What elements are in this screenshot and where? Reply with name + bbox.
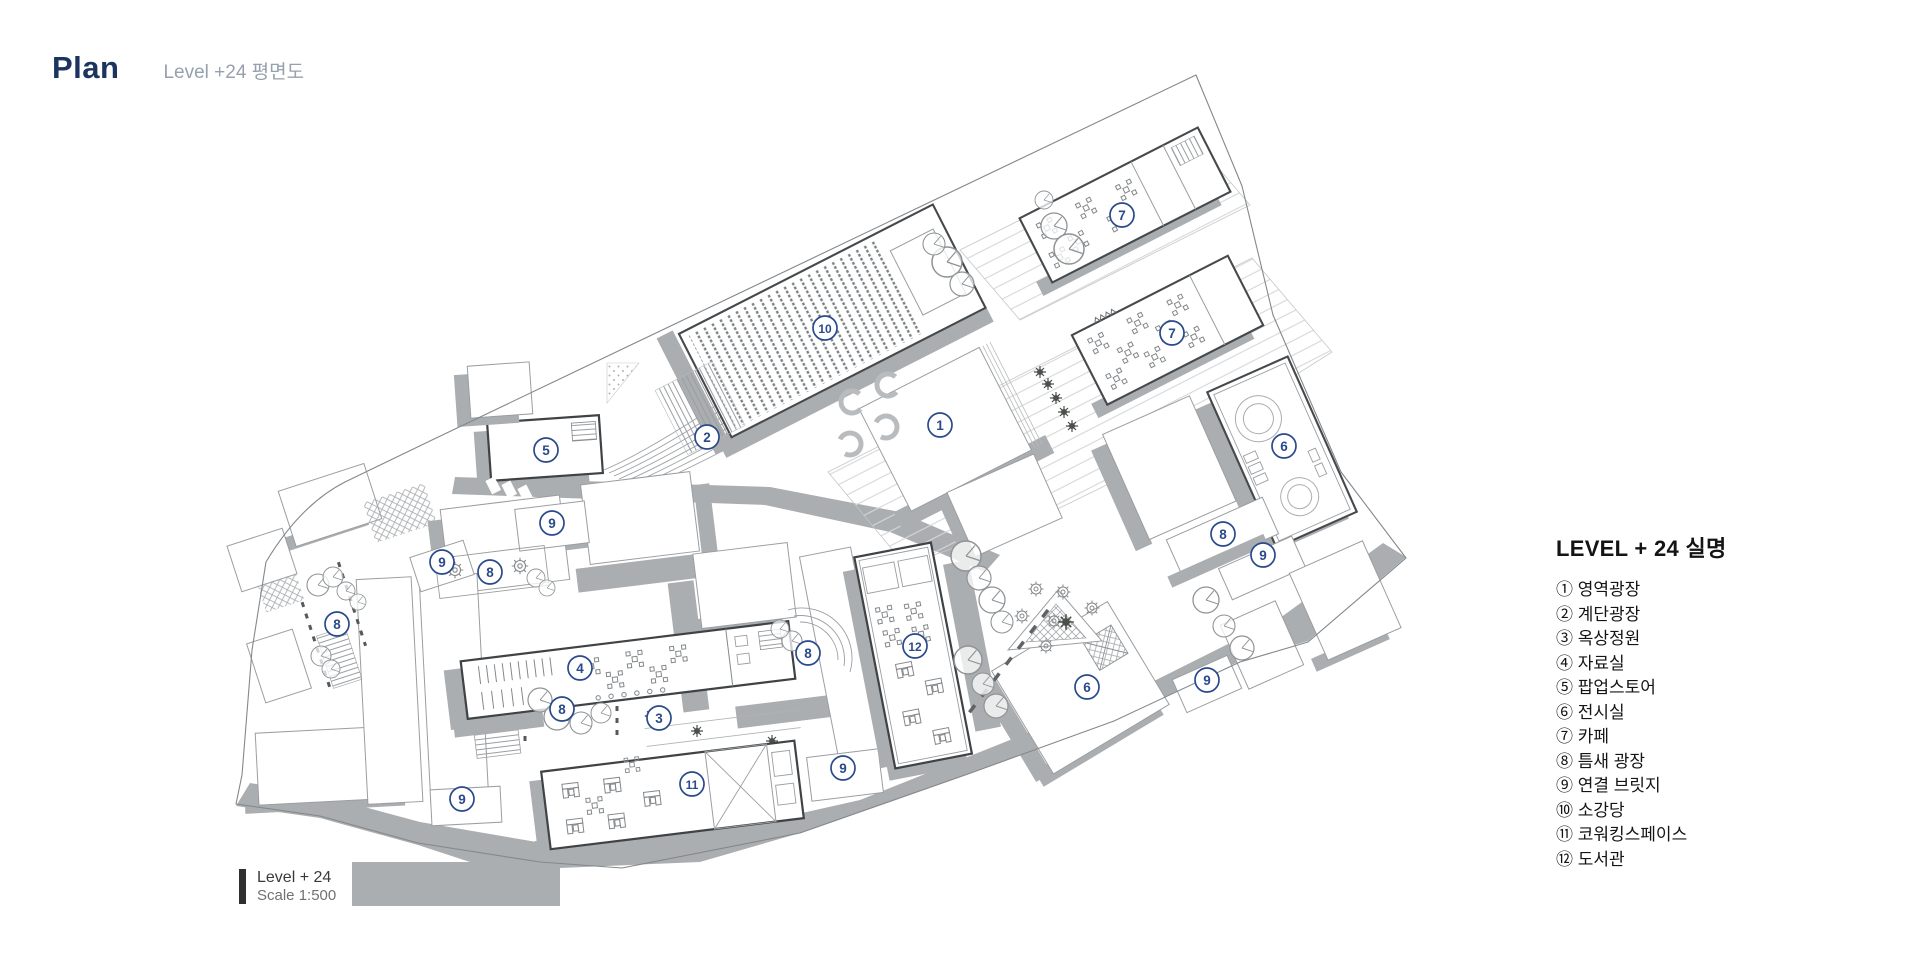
scale-ratio-label: Scale 1:500 — [257, 887, 336, 904]
svg-text:8: 8 — [486, 565, 494, 580]
svg-text:10: 10 — [818, 322, 832, 336]
legend: LEVEL + 24 실명 ① 영역광장② 계단광장③ 옥상정원④ 자료실⑤ 팝… — [1556, 531, 1727, 872]
svg-text:8: 8 — [333, 617, 341, 632]
svg-text:7: 7 — [1168, 326, 1176, 341]
svg-text:9: 9 — [839, 761, 847, 776]
legend-item: ④ 자료실 — [1556, 652, 1727, 677]
legend-item: ① 영역광장 — [1556, 578, 1727, 603]
plan-marker: 10 — [813, 316, 837, 340]
plan-marker: 9 — [1195, 668, 1219, 692]
legend-items: ① 영역광장② 계단광장③ 옥상정원④ 자료실⑤ 팝업스토어⑥ 전시실⑦ 카페⑧… — [1556, 578, 1727, 872]
svg-text:3: 3 — [655, 711, 663, 726]
legend-item: ⑪ 코워킹스페이스 — [1556, 823, 1727, 848]
plan-marker: 4 — [568, 656, 592, 680]
legend-item: ③ 옥상정원 — [1556, 627, 1727, 652]
scale-block: Level + 24 Scale 1:500 — [239, 869, 336, 904]
page-header: Plan Level +24 평면도 — [52, 50, 304, 86]
svg-text:1: 1 — [936, 418, 944, 433]
svg-text:12: 12 — [908, 640, 922, 654]
plan-marker: 12 — [903, 634, 927, 658]
scale-level-label: Level + 24 — [257, 869, 336, 887]
plan-marker: 3 — [647, 706, 671, 730]
page-title: Plan — [52, 50, 119, 86]
plan-marker: 7 — [1110, 203, 1134, 227]
plan-marker: 5 — [534, 438, 558, 462]
legend-item: ② 계단광장 — [1556, 603, 1727, 628]
svg-text:9: 9 — [1259, 548, 1267, 563]
coworking-building — [526, 738, 805, 863]
plan-marker: 9 — [540, 511, 564, 535]
plan-marker: 2 — [695, 425, 719, 449]
plan-marker: 1 — [928, 413, 952, 437]
plan-marker: 8 — [1211, 522, 1235, 546]
svg-text:8: 8 — [558, 702, 566, 717]
legend-item: ⑫ 도서관 — [1556, 848, 1727, 873]
plan-marker: 8 — [478, 560, 502, 584]
legend-item: ⑤ 팝업스토어 — [1556, 676, 1727, 701]
legend-title: LEVEL + 24 실명 — [1556, 531, 1727, 563]
scale-bar — [239, 869, 246, 904]
legend-item: ⑩ 소강당 — [1556, 799, 1727, 824]
legend-item: ⑥ 전시실 — [1556, 701, 1727, 726]
svg-text:6: 6 — [1280, 439, 1288, 454]
plan-marker: 6 — [1272, 434, 1296, 458]
svg-text:6: 6 — [1083, 680, 1091, 695]
plan-marker: 9 — [831, 756, 855, 780]
svg-text:4: 4 — [576, 661, 584, 676]
plan-marker: 9 — [430, 550, 454, 574]
plan-marker: 11 — [680, 772, 704, 796]
svg-text:9: 9 — [438, 555, 446, 570]
svg-text:9: 9 — [458, 792, 466, 807]
svg-text:11: 11 — [686, 778, 699, 792]
plan-marker: 6 — [1075, 675, 1099, 699]
plan-marker: 8 — [796, 641, 820, 665]
plan-marker: 8 — [325, 612, 349, 636]
plan-marker: 9 — [450, 787, 474, 811]
plan-marker: 8 — [550, 697, 574, 721]
svg-text:2: 2 — [703, 430, 711, 445]
svg-text:7: 7 — [1118, 208, 1126, 223]
legend-item: ⑦ 카페 — [1556, 725, 1727, 750]
plan-marker: 9 — [1251, 543, 1275, 567]
legend-item: ⑧ 틈새 광장 — [1556, 750, 1727, 775]
svg-text:8: 8 — [804, 646, 812, 661]
page-subtitle: Level +24 평면도 — [163, 57, 304, 84]
plan-marker: 7 — [1160, 321, 1184, 345]
legend-item: ⑨ 연결 브릿지 — [1556, 774, 1727, 799]
svg-text:5: 5 — [542, 443, 550, 458]
svg-text:8: 8 — [1219, 527, 1227, 542]
svg-text:9: 9 — [548, 516, 556, 531]
svg-text:9: 9 — [1203, 673, 1211, 688]
